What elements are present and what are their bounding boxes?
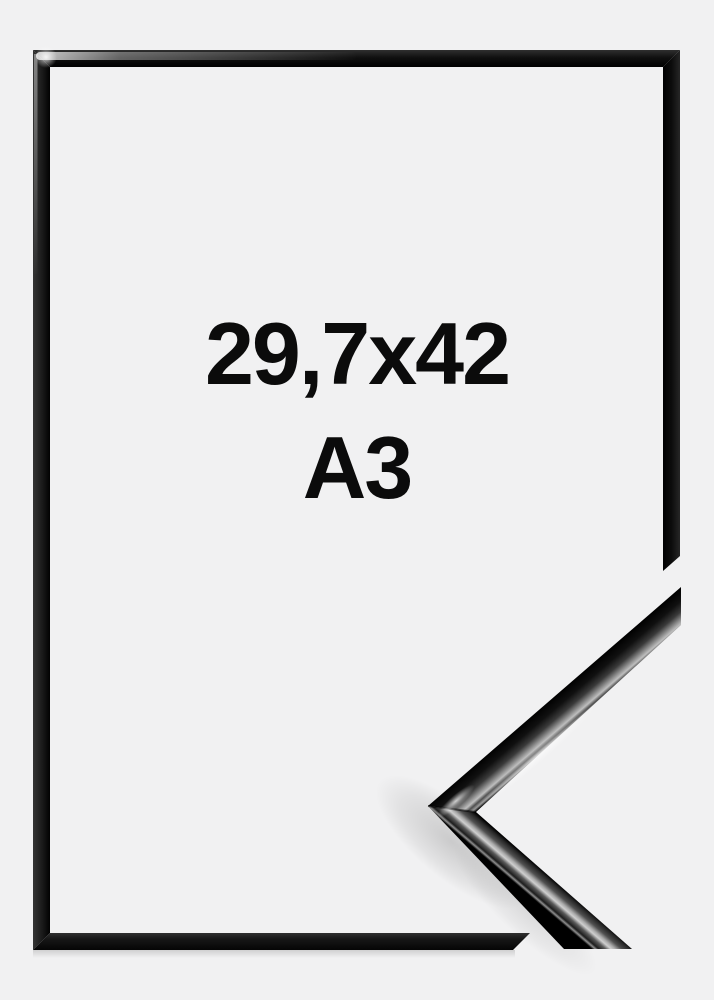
format-label: A3 [0,411,714,525]
size-labels: 29,7x42 A3 [0,297,714,525]
size-label: 29,7x42 [0,297,714,411]
frame-bottom-rail [33,933,530,950]
corner-glint [35,46,57,68]
product-photo: 29,7x42 A3 [0,0,714,1000]
left-rail-sheen [34,54,38,274]
frame-drop-shadow [33,950,515,958]
top-rail-sheen [36,52,356,60]
